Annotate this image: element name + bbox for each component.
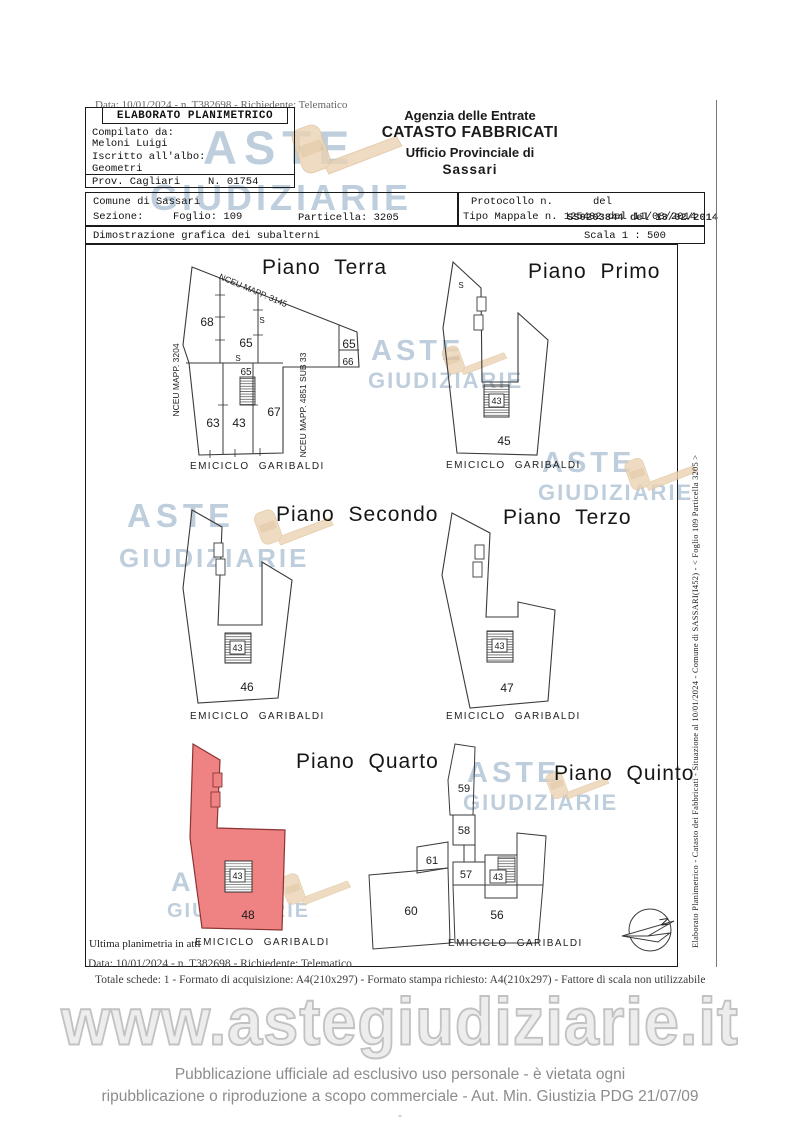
room-number: 63 [206, 416, 220, 430]
del-label: del [593, 196, 612, 208]
survey-ticks [210, 295, 263, 458]
page-edge-line [716, 100, 717, 967]
plan-outline [442, 513, 555, 708]
room-letter: S [458, 281, 463, 290]
elaborato-title: ELABORATO PLANIMETRICO [102, 107, 288, 124]
room-59-outline [448, 744, 475, 815]
room-number: 61 [426, 855, 438, 867]
albo-number: N. 01754 [208, 176, 258, 188]
boundary-label-top: NCEU MAPP. 3145 [218, 271, 289, 309]
divider [86, 174, 294, 175]
street-label: EMICICLO GARIBALDI [446, 711, 581, 722]
iscritto-label: Iscritto all'albo: [92, 151, 205, 163]
protocol-box: Protocollo n. del Tipo Mappale n. 125402… [458, 192, 705, 226]
subtitle: Dimostrazione grafica dei subalterni [93, 230, 320, 242]
plan-outline [443, 262, 548, 455]
north-compass-icon: N [618, 903, 680, 957]
agency-line3: Ufficio Provinciale di [370, 145, 570, 160]
location-box: Comune di Sassari Sezione: Foglio: 109 P… [85, 192, 458, 226]
room-number: 68 [200, 315, 214, 329]
street-label: EMICICLO GARIBALDI [195, 937, 330, 948]
room-number: 65 [240, 367, 252, 378]
room-number: 66 [342, 357, 354, 368]
balcony [211, 792, 220, 807]
room-number: 57 [460, 869, 472, 881]
room-number: 46 [240, 680, 254, 694]
prov-label: Prov. Cagliari [92, 176, 180, 188]
cadastral-document-page: Data: 10/01/2024 - n. T382698 - Richiede… [0, 0, 800, 1132]
comune: Comune di Sassari [93, 196, 200, 208]
room-number: 48 [241, 908, 255, 922]
balcony [477, 297, 486, 311]
floor-plan-piano-terzo: 43 47 [420, 495, 700, 735]
floor-plan-piano-secondo: 43 46 [140, 495, 420, 735]
stair-symbol [240, 377, 255, 405]
street-label: EMICICLO GARIBALDI [190, 461, 325, 472]
footer-data-line: Data: 10/01/2024 - n. T382698 - Richiede… [88, 958, 352, 970]
room-number: 59 [458, 783, 470, 795]
corridor-outline [464, 845, 475, 862]
protocollo-label: Protocollo n. [471, 196, 553, 208]
room-number: 43 [232, 871, 242, 881]
agency-line4: Sassari [370, 162, 570, 177]
particella: Particella: 3205 [298, 212, 399, 224]
room-number: 43 [493, 872, 503, 882]
room-number: 45 [497, 434, 511, 448]
room-outline [517, 833, 546, 885]
room-number: 43 [491, 396, 501, 406]
floor-plan-piano-terra: 68 65 65 66 S S 65 63 43 67 NCEU MAPP. 3… [140, 255, 410, 485]
room-number: 65 [239, 336, 253, 350]
compilato-value: Meloni Luigi [92, 138, 168, 150]
agency-heading: Agenzia delle Entrate CATASTO FABBRICATI… [370, 108, 570, 177]
room-letter: S [259, 316, 264, 325]
boundary-label-left: NCEU MAPP. 3204 [171, 343, 181, 416]
subtitle-row: Dimostrazione grafica dei subalterni Sca… [85, 226, 705, 244]
street-label: EMICICLO GARIBALDI [446, 460, 581, 471]
ultima-planimetria-note: Ultima planimetria in atti [89, 938, 201, 950]
balcony [214, 543, 223, 557]
plan-outline-highlighted [190, 744, 285, 930]
disclaimer-line1: Pubblicazione ufficiale ad esclusivo uso… [0, 1066, 800, 1084]
room-number: 47 [500, 681, 514, 695]
floor-plan-piano-primo: 43 S 45 [420, 258, 690, 483]
disclaimer-line2: ripubblicazione o riproduzione a scopo c… [0, 1088, 800, 1106]
compiler-box: ELABORATO PLANIMETRICO Compilato da: Mel… [85, 107, 295, 188]
street-label: EMICICLO GARIBALDI [190, 711, 325, 722]
room-number: 43 [494, 641, 504, 651]
balcony [475, 545, 484, 559]
sezione-label: Sezione: [93, 211, 143, 223]
room-number: 60 [404, 904, 418, 918]
scala: Scala 1 : 500 [584, 230, 666, 242]
room-number: 65 [342, 337, 356, 351]
boundary-label-right: NCEU MAPP. 4851 SUB 33 [298, 352, 308, 457]
url-watermark: www.astegiudiziarie.it [0, 984, 800, 1060]
disclaimer-dash: - [0, 1108, 800, 1122]
balcony [216, 559, 225, 575]
room-number: 67 [267, 405, 281, 419]
street-label: EMICICLO GARIBALDI [448, 938, 583, 949]
agency-line2: CATASTO FABBRICATI [370, 124, 570, 142]
agency-line1: Agenzia delle Entrate [370, 108, 570, 123]
balcony [474, 315, 483, 330]
foglio: Foglio: 109 [173, 211, 242, 223]
plan-outline [183, 510, 292, 703]
balcony [473, 562, 482, 577]
room-number: 43 [232, 643, 242, 653]
side-vertical-caption: Elaborato Planimetrico - Catasto dei Fab… [690, 455, 700, 948]
protocol-stamp-overlay: SS0203844 del 13/02/2014 [567, 212, 718, 224]
balcony [213, 773, 222, 787]
room-number: 43 [232, 416, 246, 430]
room-number: 58 [458, 825, 470, 837]
room-letter: S [235, 354, 240, 363]
room-number: 56 [490, 908, 504, 922]
